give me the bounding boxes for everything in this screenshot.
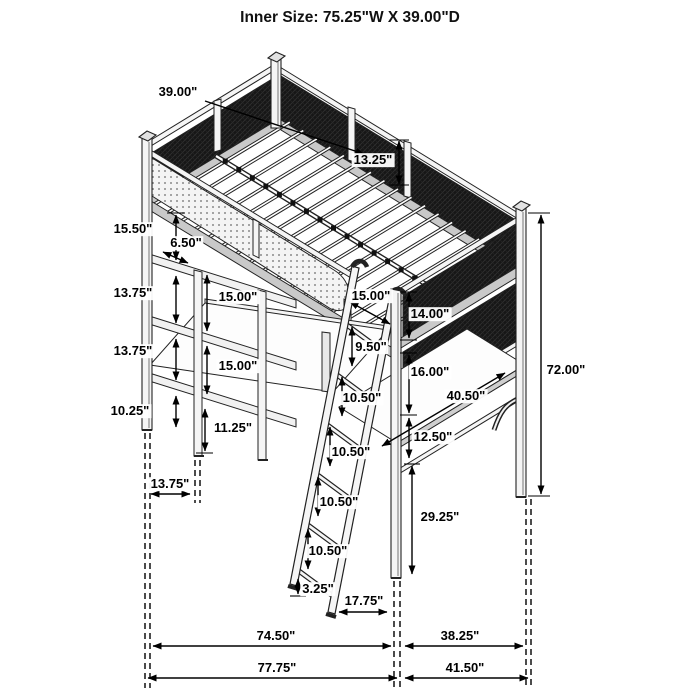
dim-desk-to-rail: 12.50" xyxy=(412,430,455,444)
dim-guardrail-height: 13.25" xyxy=(352,153,395,167)
dim-ladder-gap-5: 10.50" xyxy=(307,544,350,558)
dim-ladder-gap-2: 10.50" xyxy=(341,391,384,405)
dim-ladder-gap-3: 10.50" xyxy=(330,445,373,459)
dim-underbed-to-shelf1: 15.50" xyxy=(112,222,155,236)
dim-ladder-gap-top: 9.50" xyxy=(353,340,388,354)
dim-bed-depth: 39.00" xyxy=(157,85,200,99)
dim-ladder-foot-clearance: 3.25" xyxy=(300,582,335,596)
dim-lower-screen-height: 16.00" xyxy=(409,365,452,379)
dim-shelf-gap-rear-upper: 13.75" xyxy=(112,286,155,300)
dim-base-span-width: 74.50" xyxy=(255,629,298,643)
dim-overall-depth: 41.50" xyxy=(444,661,487,675)
dim-upper-screen-height: 14.00" xyxy=(409,307,452,321)
dim-shelf-gap-front-upper: 15.00" xyxy=(217,290,260,304)
dim-front-corner-gap: 15.00" xyxy=(350,289,393,303)
dim-ladder-foot-offset: 17.75" xyxy=(343,594,386,608)
shelf-post-front xyxy=(258,290,266,460)
dim-shelf-depth: 6.50" xyxy=(168,236,203,250)
dim-base-span-depth: 38.25" xyxy=(439,629,482,643)
dim-rail-to-floor: 29.25" xyxy=(419,510,462,524)
dim-shelf-post-below: 11.25" xyxy=(212,421,254,435)
dim-shelf-gap-rear-lower: 13.75" xyxy=(112,344,155,358)
dim-shelf-to-leg-end: 10.25" xyxy=(109,404,152,418)
dim-overall-height: 72.00" xyxy=(545,363,588,377)
dim-shelf-floor-offset: 13.75" xyxy=(149,477,192,491)
shelf-post-rear xyxy=(194,270,202,456)
diagram-title: Inner Size: 75.25"W X 39.00"D xyxy=(240,9,460,27)
dim-desk-length: 40.50" xyxy=(445,389,488,403)
dim-ladder-gap-4: 10.50" xyxy=(318,495,361,509)
dim-shelf-gap-front-lower: 15.00" xyxy=(217,359,260,373)
loft-bed-dimension-diagram: Inner Size: 75.25"W X 39.00"D 39.00" 13.… xyxy=(0,0,700,700)
dim-overall-width: 77.75" xyxy=(256,661,299,675)
